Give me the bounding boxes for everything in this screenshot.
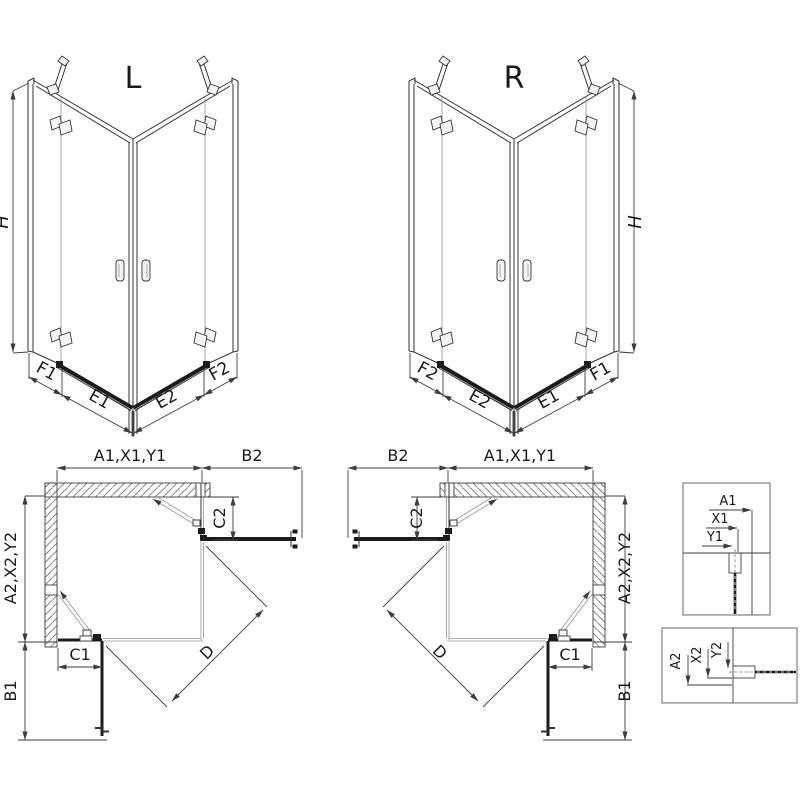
dim-label-c2-right: C2 [407,507,426,528]
detail-label-y1: Y1 [706,530,723,545]
detail-label-x2: X2 [690,646,705,663]
detail-box-bottom: A2 X2 Y2 [662,628,797,703]
dim-label-a2x2y2-left: A2,X2,Y2 [1,532,20,604]
dim-label-b1-left: B1 [1,680,20,701]
detail-box-top: A1 X1 Y1 [683,483,770,615]
dim-label-d-left: D [196,641,218,663]
detail-label-y2: Y2 [710,642,725,659]
dim-label-c2-left: C2 [210,507,229,528]
detail-label-a1: A1 [719,494,736,509]
detail-label-a2: A2 [669,652,684,669]
iso-view-right: R H F2 E2 E1 F1 [409,56,646,437]
diagram-canvas: L H F1 E1 E2 F2 R H F2 E2 E1 F1 A1,X1,Y1… [0,0,800,800]
variant-label-left: L [125,61,142,96]
diagram-page: L H F1 E1 E2 F2 R H F2 E2 E1 F1 A1,X1,Y1… [0,0,800,800]
dim-label-c1-left: C1 [69,645,90,664]
dim-label-a2x2y2-right: A2,X2,Y2 [615,532,634,604]
plan-view-left: A1,X1,Y1 B2 C2 A2,X2,Y2 C1 B1 D [1,446,302,740]
dim-label-b2-left: B2 [241,446,262,465]
dim-label-d-right: D [429,641,451,663]
iso-view-left: L H F1 E1 E2 F2 [0,56,238,437]
dim-label-b2-right: B2 [387,446,408,465]
dim-label-a1x1y1-right: A1,X1,Y1 [484,446,556,465]
variant-label-right: R [504,61,525,96]
dim-label-height-right: H [625,215,646,229]
plan-view-right: B2 A1,X1,Y1 C2 A2,X2,Y2 C1 B1 D [348,446,634,740]
detail-label-x1: X1 [711,512,728,527]
dim-label-c1-right: C1 [559,645,580,664]
dim-label-b1-right: B1 [615,680,634,701]
dim-label-a1x1y1-left: A1,X1,Y1 [94,446,166,465]
dim-label-height-left: H [0,215,13,229]
